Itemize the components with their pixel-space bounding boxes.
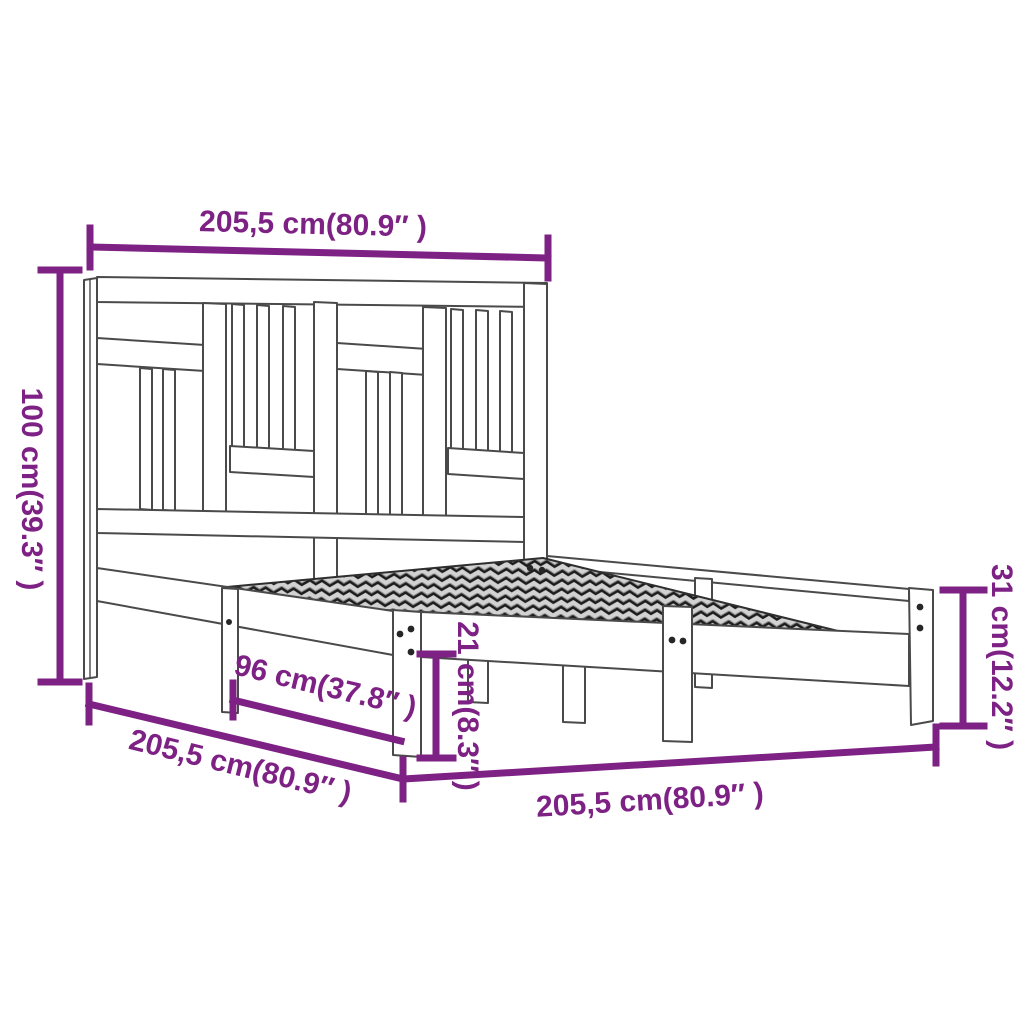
headboard-board — [97, 338, 205, 371]
corner-height-label: 31 cm(12.2″ ) — [985, 564, 1018, 750]
near-foot-post — [393, 610, 421, 757]
side-length-label: 205,5 cm(80.9″ ) — [126, 723, 355, 809]
screw-dot — [527, 565, 533, 571]
headboard-slat — [390, 372, 402, 517]
rail-length-label: 96 cm(37.8″ ) — [231, 649, 420, 725]
headboard-wide-slat — [203, 303, 226, 512]
dimension-line — [90, 247, 548, 258]
headboard-slat — [140, 368, 152, 510]
dimension-corner-height — [943, 590, 984, 726]
headboard-slat — [500, 311, 512, 454]
headboard-board — [448, 448, 524, 479]
headboard-board — [230, 446, 314, 477]
screw-dot — [917, 604, 924, 611]
screw-dot — [226, 619, 232, 625]
headboard-width-label: 205,5 cm(80.9″ ) — [199, 205, 428, 244]
screw-dot — [408, 626, 415, 633]
headboard-bottom-rail — [97, 509, 524, 542]
bed-base — [97, 556, 933, 757]
bed-drawing — [84, 277, 933, 757]
screw-dot — [669, 637, 676, 644]
screw-dot — [680, 638, 687, 645]
headboard-wide-slat — [423, 307, 446, 519]
base-height-label: 21 cm(8.3″ ) — [451, 621, 484, 790]
screw-dot — [397, 631, 404, 638]
headboard-slat — [163, 369, 175, 511]
headboard-slat — [232, 304, 244, 449]
screw-dot — [408, 649, 415, 656]
headboard-center-post — [314, 302, 337, 601]
screw-dot — [539, 567, 545, 573]
headboard-slat — [366, 371, 378, 516]
headboard-board — [337, 343, 427, 375]
bed-leg — [663, 606, 692, 742]
headboard-slat — [283, 306, 295, 451]
headboard-slat — [451, 309, 463, 452]
foot-width-label: 205,5 cm(80.9″ ) — [535, 777, 764, 824]
headboard-slat — [476, 310, 488, 453]
headboard-slat — [257, 305, 269, 450]
product-dimension-page: 205,5 cm(80.9″ ) 100 cm(39.3″ ) 31 cm(12… — [0, 0, 1024, 1024]
headboard-right-post — [524, 283, 547, 601]
screw-dot — [917, 625, 924, 632]
headboard-height-label: 100 cm(39.3″ ) — [15, 388, 48, 591]
dimension-base-height — [420, 654, 453, 758]
bed-frame-diagram: 205,5 cm(80.9″ ) 100 cm(39.3″ ) 31 cm(12… — [0, 0, 1024, 1024]
